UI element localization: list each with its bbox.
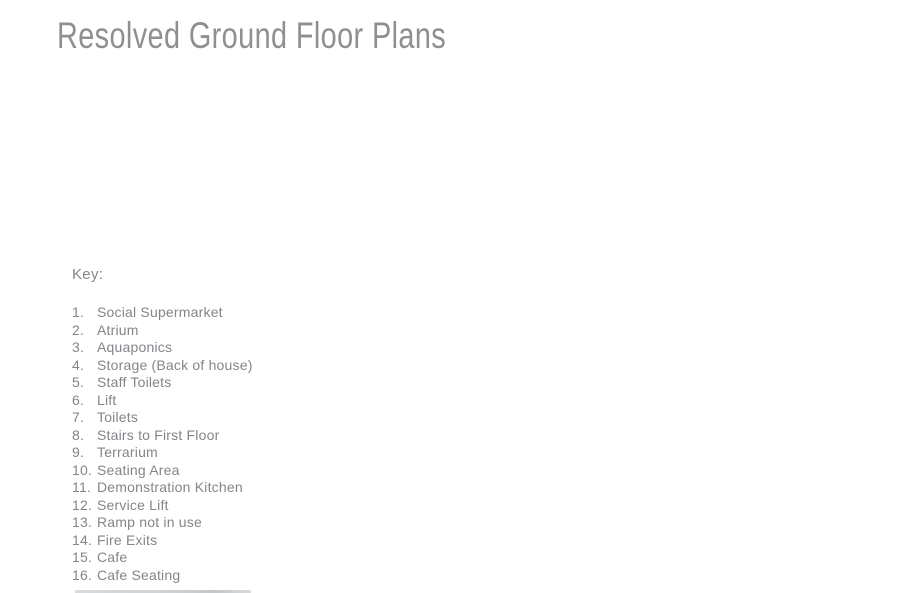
item-label: Lift xyxy=(97,392,116,408)
item-number: 7. xyxy=(72,409,97,427)
key-list-item: 10.Seating Area xyxy=(72,462,253,480)
item-number: 12. xyxy=(72,497,97,515)
key-list-item: 7.Toilets xyxy=(72,409,253,427)
key-list-item: 8.Stairs to First Floor xyxy=(72,427,253,445)
item-number: 1. xyxy=(72,304,97,322)
key-list-item: 1.Social Supermarket xyxy=(72,304,253,322)
item-label: Storage (Back of house) xyxy=(97,357,253,373)
key-list-item: 9.Terrarium xyxy=(72,444,253,462)
key-list-item: 11.Demonstration Kitchen xyxy=(72,479,253,497)
item-number: 15. xyxy=(72,549,97,567)
key-list-item: 14.Fire Exits xyxy=(72,532,253,550)
item-label: Social Supermarket xyxy=(97,304,223,320)
item-number: 5. xyxy=(72,374,97,392)
key-list-item: 4.Storage (Back of house) xyxy=(72,357,253,375)
item-label: Toilets xyxy=(97,409,138,425)
item-label: Cafe Seating xyxy=(97,567,180,583)
item-number: 10. xyxy=(72,462,97,480)
item-label: Staff Toilets xyxy=(97,374,171,390)
item-number: 6. xyxy=(72,392,97,410)
key-list-item: 15.Cafe xyxy=(72,549,253,567)
item-number: 13. xyxy=(72,514,97,532)
item-number: 14. xyxy=(72,532,97,550)
item-number: 3. xyxy=(72,339,97,357)
item-number: 16. xyxy=(72,567,97,585)
item-label: Fire Exits xyxy=(97,532,157,548)
key-list-item: 2.Atrium xyxy=(72,322,253,340)
item-label: Stairs to First Floor xyxy=(97,427,219,443)
item-label: Cafe xyxy=(97,549,127,565)
item-label: Seating Area xyxy=(97,462,180,478)
key-list-item: 16.Cafe Seating xyxy=(72,567,253,585)
item-number: 2. xyxy=(72,322,97,340)
key-list-item: 13.Ramp not in use xyxy=(72,514,253,532)
item-label: Ramp not in use xyxy=(97,514,202,530)
item-number: 4. xyxy=(72,357,97,375)
key-list-item: 5.Staff Toilets xyxy=(72,374,253,392)
item-label: Atrium xyxy=(97,322,139,338)
item-label: Service Lift xyxy=(97,497,169,513)
item-label: Terrarium xyxy=(97,444,158,460)
item-number: 11. xyxy=(72,479,97,497)
document-page: Resolved Ground Floor Plans Key: 1.Socia… xyxy=(0,0,902,593)
key-list: 1.Social Supermarket 2.Atrium 3.Aquaponi… xyxy=(72,304,253,584)
item-label: Demonstration Kitchen xyxy=(97,479,243,495)
item-number: 9. xyxy=(72,444,97,462)
item-label: Aquaponics xyxy=(97,339,172,355)
item-number: 8. xyxy=(72,427,97,445)
key-heading: Key: xyxy=(72,266,103,283)
page-title: Resolved Ground Floor Plans xyxy=(57,15,446,57)
key-list-item: 12.Service Lift xyxy=(72,497,253,515)
key-list-item: 3.Aquaponics xyxy=(72,339,253,357)
key-list-item: 6.Lift xyxy=(72,392,253,410)
